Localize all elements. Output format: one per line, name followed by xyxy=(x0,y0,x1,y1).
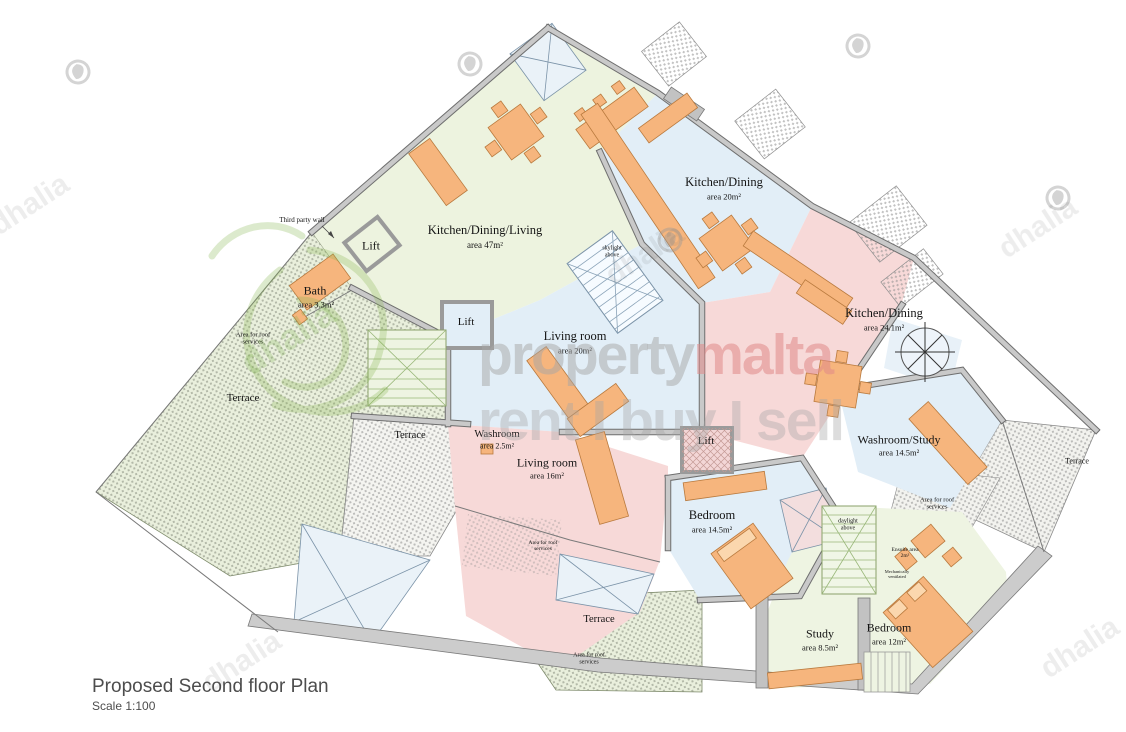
terrace-label-bottom: Terrace xyxy=(583,614,614,626)
room-area-bedroom-12: area 12m² xyxy=(872,637,906,646)
mechanically-ventilated-label: Mechanically ventilated xyxy=(876,569,918,579)
room-area-bedroom-14: area 14.5m² xyxy=(692,525,732,534)
room-label-washroom-study: Washroom/Study xyxy=(857,433,940,446)
lift-label-right: Lift xyxy=(698,435,715,447)
room-label-bedroom-12: Bedroom xyxy=(867,621,912,634)
room-label-washroom: Washroom xyxy=(474,429,519,441)
third-party-wall-label: Third party wall xyxy=(279,217,325,225)
roof-services-label-center: Area for roof services xyxy=(523,540,563,552)
lift-label-mid: Lift xyxy=(458,316,475,328)
room-label-kitchen-dining-24: Kitchen/Dining xyxy=(845,307,923,321)
room-label-bath: Bath xyxy=(304,284,327,297)
room-label-bedroom-14: Bedroom xyxy=(689,509,736,523)
terrace-label-midleft: Terrace xyxy=(394,430,425,442)
room-label-kitchen-dining-living: Kitchen/Dining/Living xyxy=(428,224,543,238)
ensuite-label: Ensuite area 2m² xyxy=(888,547,922,559)
daylight-above-label: daylight above xyxy=(831,518,865,531)
lift-label-top: Lift xyxy=(362,239,380,252)
room-area-kitchen-dining-living: area 47m² xyxy=(467,241,503,251)
roof-services-label-bottom: Area for roof services xyxy=(567,652,611,665)
plan-drawing xyxy=(0,0,1126,732)
room-label-living-16: Living room xyxy=(517,456,577,469)
skylight-above-label: skylight above xyxy=(595,245,629,258)
room-area-study: area 8.5m² xyxy=(802,643,838,652)
room-area-living-16: area 16m² xyxy=(530,471,564,480)
roof-services-label-right: Area for roof services xyxy=(913,497,961,512)
plan-scale: Scale 1:100 xyxy=(92,699,155,713)
room-area-living-20: area 20m² xyxy=(558,346,592,355)
room-area-bath: area 3.3m² xyxy=(298,300,334,309)
plan-title: Proposed Second floor Plan xyxy=(92,676,329,698)
room-area-washroom: area 2.5m² xyxy=(480,443,514,452)
terrace-label-left: Terrace xyxy=(227,392,260,404)
room-label-kitchen-dining-20: Kitchen/Dining xyxy=(685,176,763,190)
room-label-living-20: Living room xyxy=(544,330,607,344)
floor-plan-page: Kitchen/Dining/Living area 47m² Kitchen/… xyxy=(0,0,1126,732)
room-area-washroom-study: area 14.5m² xyxy=(879,448,919,457)
room-area-kitchen-dining-24: area 24.1m² xyxy=(864,323,904,332)
terrace-label-right: Terrace xyxy=(1065,458,1089,467)
room-label-study: Study xyxy=(806,627,834,640)
room-area-kitchen-dining-20: area 20m² xyxy=(707,192,741,201)
roof-services-label-left: Area for roof services xyxy=(226,332,280,347)
